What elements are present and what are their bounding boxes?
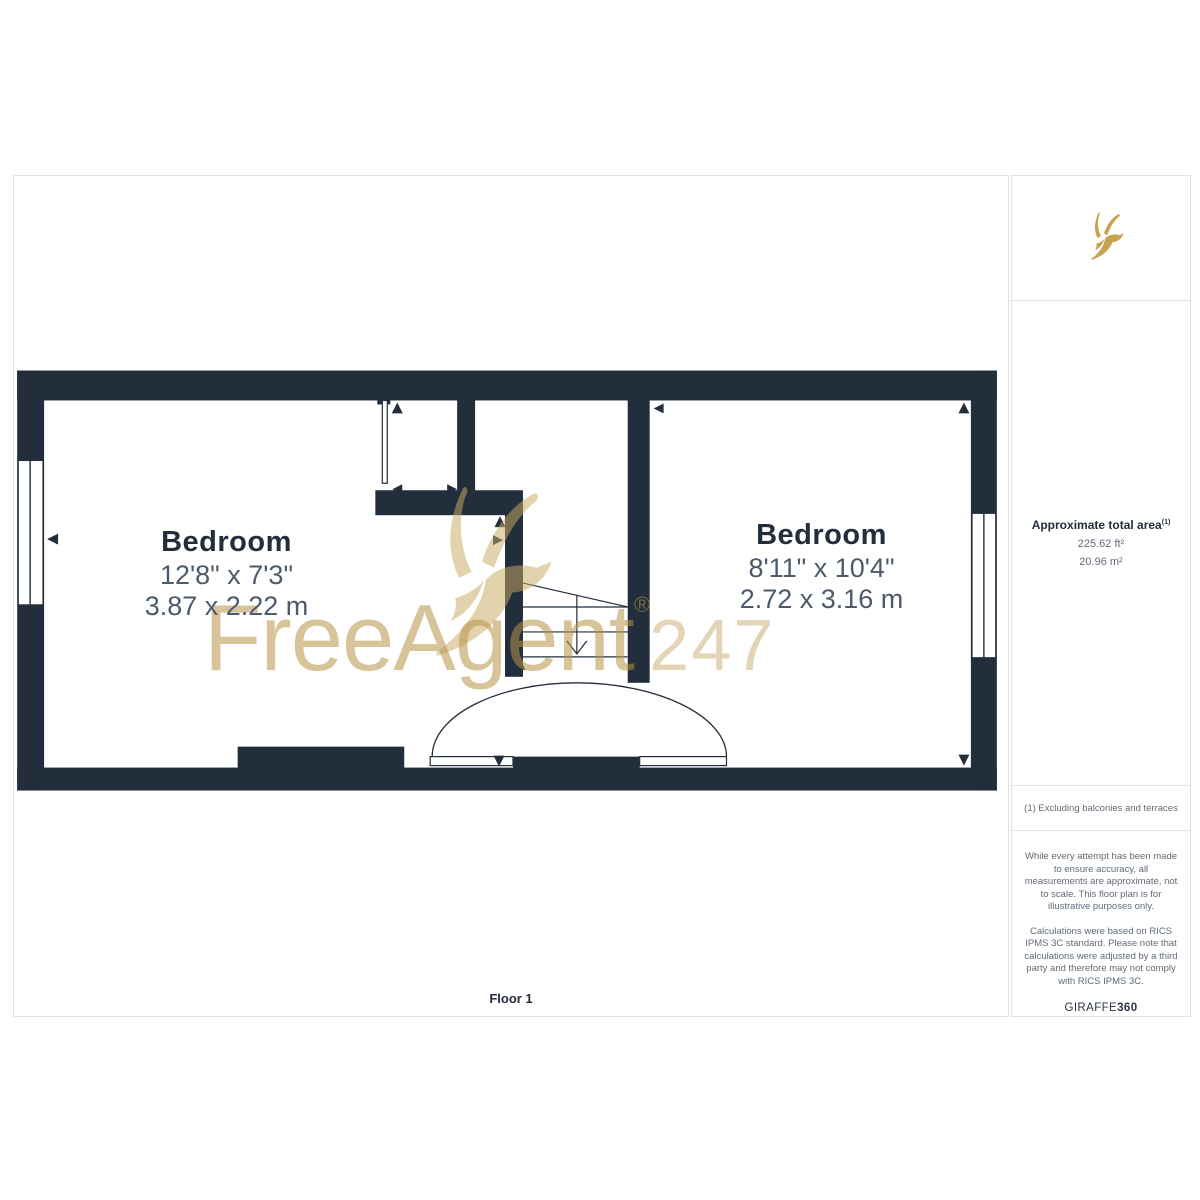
total-area-imperial: 225.62 ft² [1078,538,1124,550]
disclaimer-accuracy: While every attempt has been made to ens… [1023,851,1179,914]
window-left [18,460,43,605]
total-area-title: Approximate total area(1) [1032,518,1171,532]
floorplan-panel: FreeAgent®247 Bedroom 12'8" x 7'3" 3.87 … [13,175,1009,1017]
total-area-box: Approximate total area(1) 225.62 ft² 20.… [1012,300,1190,785]
hummingbird-watermark-icon [369,448,574,708]
disclaimer-box: While every attempt has been made to ens… [1012,830,1190,1016]
footnote-marker: (1) [1162,519,1171,526]
brand-name: GIRAFFE [1064,1002,1117,1014]
page: { "plan": { "floor_label": "Floor 1", "r… [0,0,1200,1200]
brand-suffix: 360 [1117,1002,1137,1014]
hummingbird-logo-icon [1072,209,1130,267]
logo-box [1012,176,1190,300]
giraffe360-brand: GIRAFFE360 [1023,1002,1179,1014]
disclaimer-calculations: Calculations were based on RICS IPMS 3C … [1023,926,1179,989]
footnote-text: (1) Excluding balconies and terraces [1016,803,1186,814]
info-sidebar: Approximate total area(1) 225.62 ft² 20.… [1011,175,1191,1017]
total-area-metric: 20.96 m² [1079,556,1122,568]
floor-label: Floor 1 [14,991,1008,1006]
footnote-box: (1) Excluding balconies and terraces [1012,785,1190,830]
window-right [972,513,996,658]
